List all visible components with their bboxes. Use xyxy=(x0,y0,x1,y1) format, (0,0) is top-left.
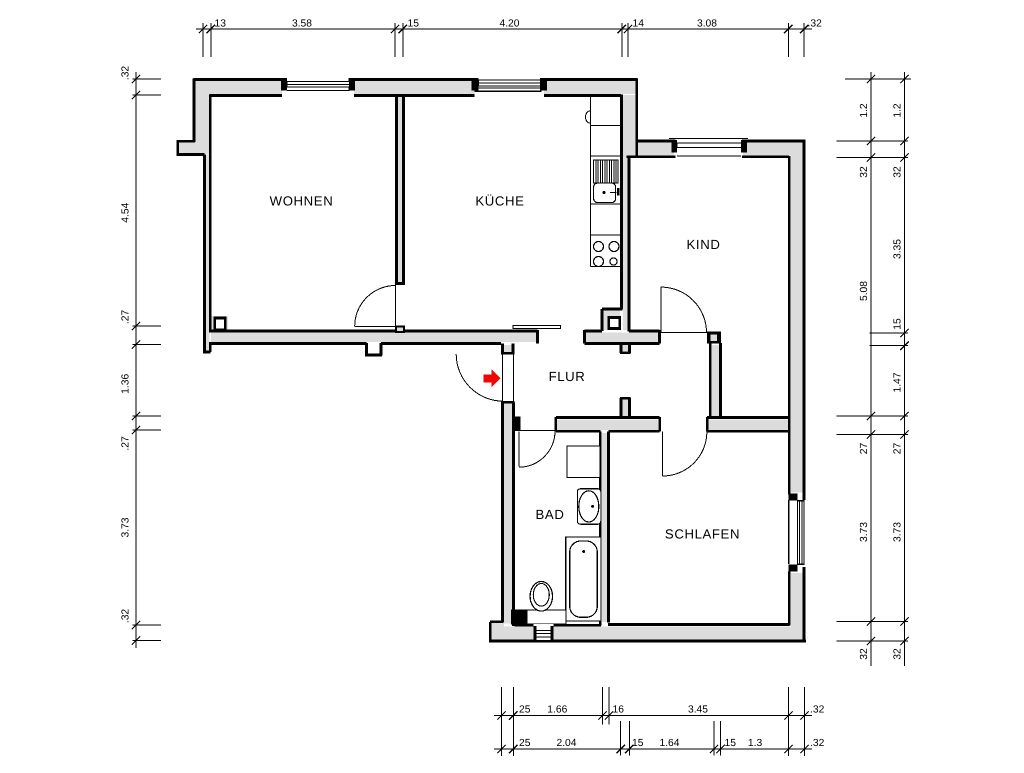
svg-text:27: 27 xyxy=(893,443,904,455)
svg-text:.32: .32 xyxy=(121,66,132,81)
svg-text:32: 32 xyxy=(859,166,870,178)
svg-text:15: 15 xyxy=(408,19,420,30)
svg-text:5.08: 5.08 xyxy=(859,281,870,301)
svg-text:15: 15 xyxy=(893,318,904,330)
svg-text:2.04: 2.04 xyxy=(556,738,576,749)
svg-text:3.73: 3.73 xyxy=(893,522,904,542)
svg-text:BAD: BAD xyxy=(536,507,565,522)
svg-text:1.64: 1.64 xyxy=(659,738,679,749)
svg-text:KIND: KIND xyxy=(687,237,721,252)
svg-text:32: 32 xyxy=(893,648,904,660)
svg-text:32: 32 xyxy=(859,648,870,660)
svg-text:32: 32 xyxy=(893,166,904,178)
svg-text:3.45: 3.45 xyxy=(688,705,708,716)
svg-text:1.36: 1.36 xyxy=(121,374,132,394)
svg-text:1.2: 1.2 xyxy=(859,103,870,118)
svg-text:3.58: 3.58 xyxy=(292,19,312,30)
svg-text:3.35: 3.35 xyxy=(893,239,904,259)
svg-text:15: 15 xyxy=(725,738,737,749)
svg-text:4.54: 4.54 xyxy=(121,202,132,222)
svg-text:.32: .32 xyxy=(121,609,132,624)
svg-text:25: 25 xyxy=(519,705,531,716)
svg-text:.32: .32 xyxy=(810,705,825,716)
svg-text:.32: .32 xyxy=(808,19,823,30)
svg-text:.32: .32 xyxy=(810,738,825,749)
svg-text:1.47: 1.47 xyxy=(893,372,904,392)
svg-text:4.20: 4.20 xyxy=(499,19,519,30)
svg-text:13: 13 xyxy=(215,19,227,30)
svg-text:.27: .27 xyxy=(121,436,132,451)
svg-text:16: 16 xyxy=(613,705,625,716)
svg-text:1.3: 1.3 xyxy=(748,738,763,749)
svg-text:WOHNEN: WOHNEN xyxy=(270,193,334,208)
svg-text:25: 25 xyxy=(519,738,531,749)
svg-text:FLUR: FLUR xyxy=(549,369,586,384)
svg-text:27: 27 xyxy=(859,443,870,455)
svg-text:3.08: 3.08 xyxy=(697,19,717,30)
svg-text:3.73: 3.73 xyxy=(121,517,132,537)
svg-text:SCHLAFEN: SCHLAFEN xyxy=(665,526,740,541)
svg-text:.27: .27 xyxy=(121,310,132,325)
svg-text:KÜCHE: KÜCHE xyxy=(475,193,524,208)
svg-text:14: 14 xyxy=(633,19,645,30)
svg-text:1.2: 1.2 xyxy=(893,103,904,118)
svg-text:1.66: 1.66 xyxy=(547,705,567,716)
svg-text:15: 15 xyxy=(632,738,644,749)
svg-text:3.73: 3.73 xyxy=(859,522,870,542)
